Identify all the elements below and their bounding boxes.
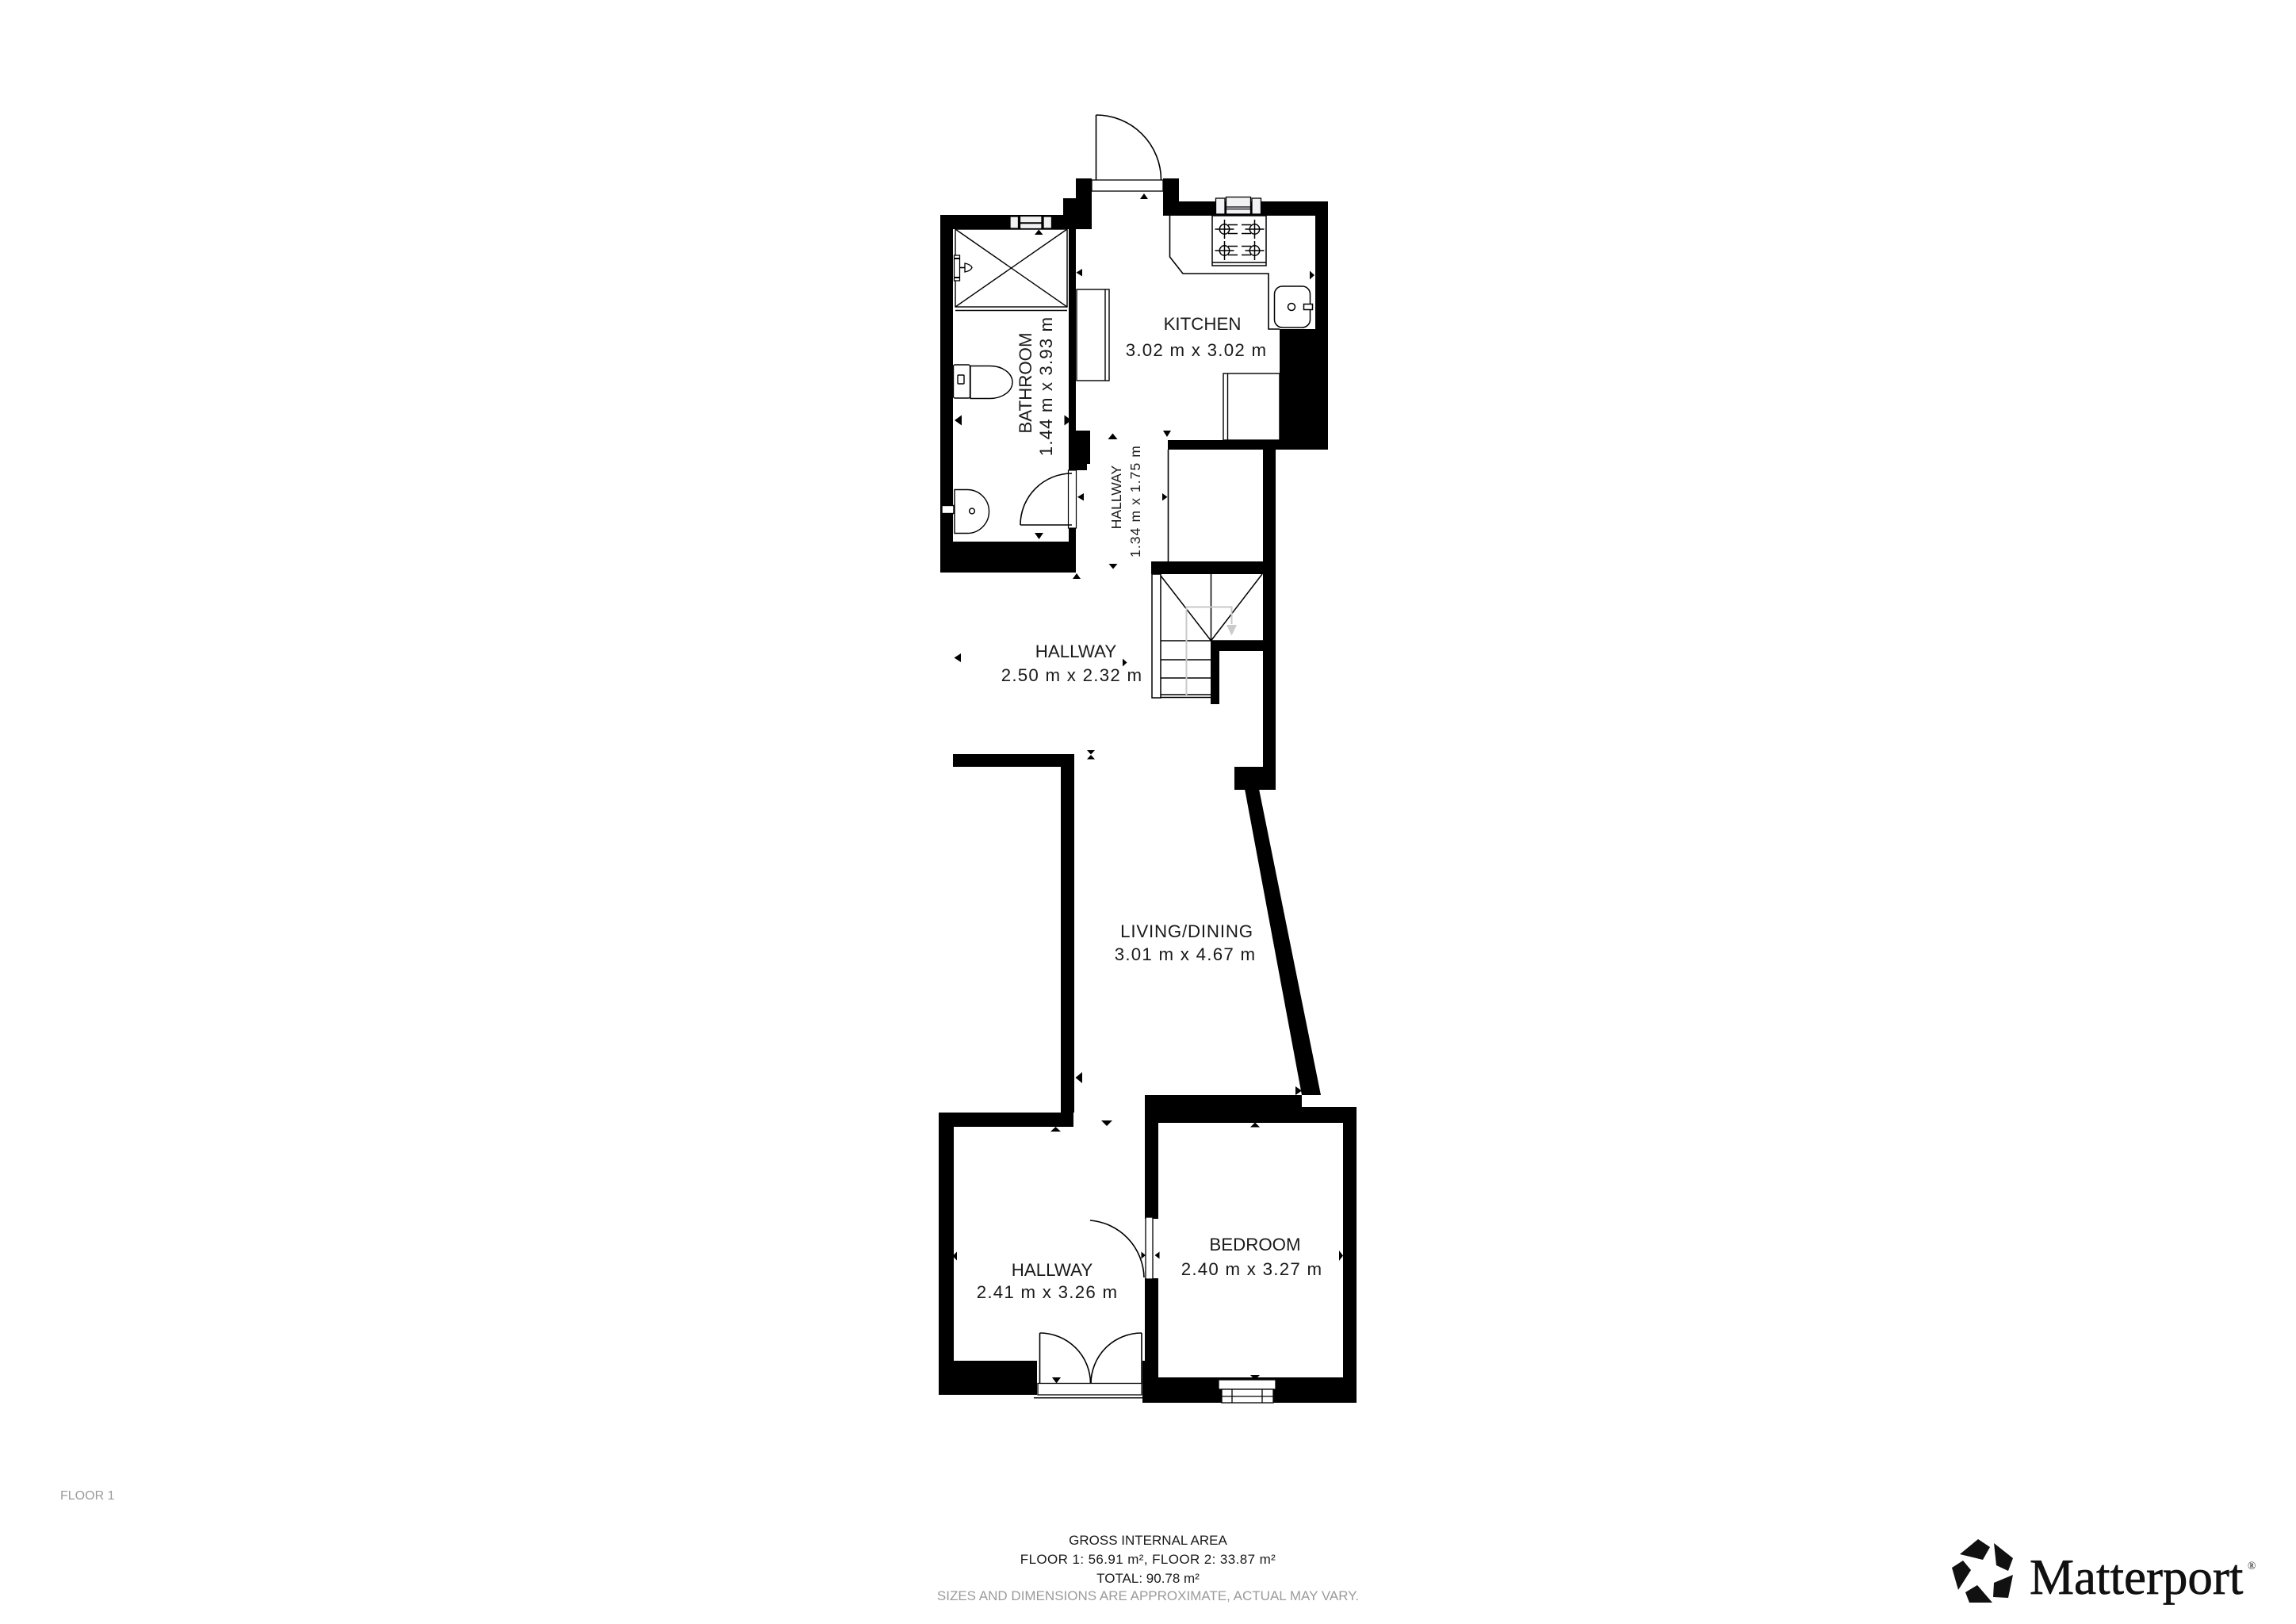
svg-text:HALLWAY: HALLWAY bbox=[1012, 1260, 1093, 1280]
svg-text:HALLWAY: HALLWAY bbox=[1108, 465, 1124, 529]
svg-text:3.02 m x 3.02 m: 3.02 m x 3.02 m bbox=[1126, 340, 1268, 360]
svg-text:LIVING/DINING: LIVING/DINING bbox=[1120, 921, 1253, 941]
svg-text:KITCHEN: KITCHEN bbox=[1164, 314, 1242, 334]
svg-text:2.40 m x 3.27 m: 2.40 m x 3.27 m bbox=[1181, 1259, 1323, 1279]
svg-text:2.50 m x 2.32 m: 2.50 m x 2.32 m bbox=[1001, 665, 1143, 685]
svg-text:FLOOR 1: FLOOR 1 bbox=[60, 1489, 115, 1503]
svg-text:BEDROOM: BEDROOM bbox=[1209, 1235, 1300, 1254]
svg-text:FLOOR 1: 56.91 m², FLOOR 2: 33: FLOOR 1: 56.91 m², FLOOR 2: 33.87 m² bbox=[1020, 1552, 1276, 1567]
svg-text:1.44 m x 3.93 m: 1.44 m x 3.93 m bbox=[1036, 316, 1056, 456]
svg-text:BATHROOM: BATHROOM bbox=[1016, 332, 1035, 433]
svg-text:SIZES AND DIMENSIONS ARE APPRO: SIZES AND DIMENSIONS ARE APPROXIMATE, AC… bbox=[937, 1588, 1359, 1603]
svg-text:HALLWAY: HALLWAY bbox=[1035, 642, 1117, 661]
svg-text:2.41 m x 3.26 m: 2.41 m x 3.26 m bbox=[977, 1282, 1119, 1302]
svg-text:®: ® bbox=[2248, 1560, 2256, 1572]
svg-text:1.34 m x 1.75 m: 1.34 m x 1.75 m bbox=[1127, 445, 1143, 557]
svg-text:Matterport: Matterport bbox=[2030, 1549, 2244, 1605]
svg-text:GROSS INTERNAL AREA: GROSS INTERNAL AREA bbox=[1069, 1533, 1227, 1548]
svg-text:3.01 m x 4.67 m: 3.01 m x 4.67 m bbox=[1115, 944, 1257, 964]
svg-text:TOTAL: 90.78 m²: TOTAL: 90.78 m² bbox=[1096, 1571, 1200, 1586]
